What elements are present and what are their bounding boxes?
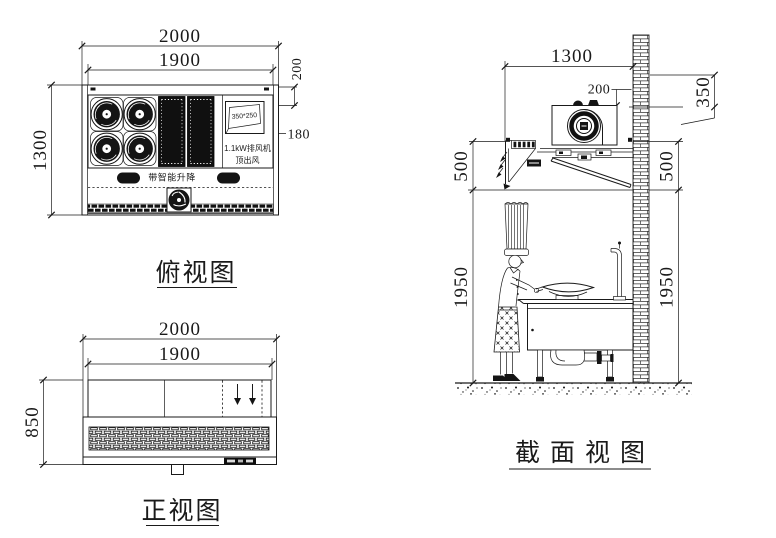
front-view-body [83, 380, 277, 475]
dim-section-1300: 1300 [551, 46, 593, 67]
brand-label [224, 458, 256, 464]
chef-legs [501, 352, 513, 375]
dim-section-200: 200 [588, 83, 611, 98]
dim-front-2000: 2000 [159, 319, 201, 340]
lift-label: 带智能升降 [148, 172, 196, 183]
fan-power-label: 1.1kW排风机 [224, 143, 271, 153]
handle-right [217, 173, 240, 184]
top-view-title-group: 俯视图 [155, 259, 237, 288]
dim-section-500-right: 500 [657, 150, 678, 182]
faucet [611, 242, 626, 301]
chef-scarf [510, 268, 519, 274]
dim-top-200: 200 [290, 58, 305, 81]
chef-shoe [505, 374, 521, 381]
dim-front-1900: 1900 [159, 344, 201, 365]
baffle-filter [551, 158, 631, 188]
top-view-body: 350*250 1.1kW排风机 顶出风 带智能升降 [82, 85, 279, 215]
front-view: 2000 1900 850 [22, 319, 280, 526]
fan-outlet-label: 顶出风 [236, 155, 260, 165]
dim-top-1300: 1300 [30, 129, 51, 171]
brick-wall [633, 35, 649, 383]
fan-icon [91, 99, 122, 130]
dim-section-500-left: 500 [451, 150, 472, 182]
filter-panel [159, 97, 186, 167]
wok-stove [519, 242, 634, 382]
lip-foot [504, 184, 511, 190]
chef-back [499, 268, 508, 307]
dim-section-350: 350 [693, 76, 714, 108]
wok [536, 283, 594, 299]
chef-apron [494, 307, 520, 352]
section-view-title-group: 截面视图 [509, 439, 655, 469]
handle-left [117, 173, 140, 184]
dim-top-1900: 1900 [159, 50, 201, 71]
section-view: 1300 200 350 500 500 1950 1950 [451, 35, 718, 469]
burner-trap [550, 350, 613, 365]
front-louver [512, 141, 536, 149]
grease-filter-mesh [89, 427, 269, 450]
hood-section [468, 100, 633, 190]
dim-section-1950-right: 1950 [657, 266, 678, 308]
fan-icon [124, 133, 155, 164]
chef-hat [505, 203, 529, 256]
dim-front-850: 850 [22, 406, 43, 438]
ground [455, 383, 692, 395]
top-view-title: 俯视图 [155, 259, 236, 287]
chef-arm [511, 277, 539, 293]
chef-figure [493, 203, 539, 382]
top-view: 2000 1900 1300 200 180 [30, 26, 310, 288]
dim-section-1950-left: 1950 [451, 266, 472, 308]
cad-drawing: 2000 1900 1300 200 180 [0, 0, 776, 538]
front-view-title-group: 正视图 [141, 497, 222, 526]
small-fan-icon [169, 190, 190, 211]
drawing-canvas: 2000 1900 1300 200 180 [0, 0, 776, 538]
section-view-title: 截面视图 [515, 439, 655, 467]
dim-top-2000: 2000 [159, 26, 201, 47]
chef-head [509, 255, 521, 267]
dim-top-180: 180 [288, 128, 311, 143]
front-view-title: 正视图 [141, 497, 222, 525]
fan-icon [124, 99, 155, 130]
bottom-tab [172, 465, 184, 475]
fan-icon [91, 133, 122, 164]
filter-panel [188, 97, 215, 167]
